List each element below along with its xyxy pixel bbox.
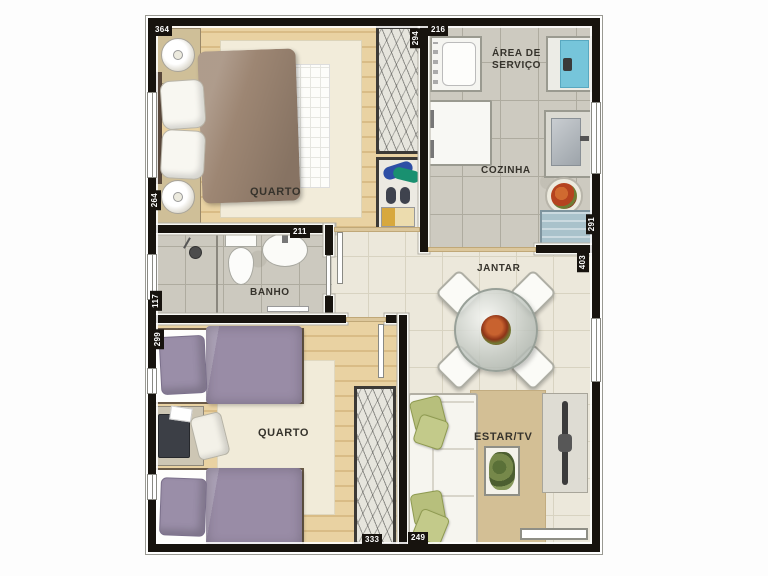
- dimension-label: 364: [152, 24, 172, 36]
- dimension-label: 117: [150, 291, 162, 311]
- dimension-label: 211: [290, 226, 310, 238]
- door-leaf: [326, 255, 331, 296]
- window: [147, 474, 157, 500]
- room-label-bathroom: BANHO: [250, 287, 290, 298]
- room-label-living-tv: ESTAR/TV: [474, 431, 532, 443]
- threshold: [428, 247, 536, 252]
- room-label-dining: JANTAR: [477, 263, 520, 274]
- room-label-kitchen: COZINHA: [481, 165, 531, 176]
- window: [591, 318, 601, 382]
- dimension-label: 249: [408, 532, 428, 544]
- room-label-bedroom-1: QUARTO: [250, 186, 301, 198]
- dimension-label: 403: [577, 252, 589, 272]
- dimension-label: 216: [428, 24, 448, 36]
- window: [591, 102, 601, 174]
- dimension-label: 299: [152, 329, 164, 349]
- room-label-line: SERVIÇO: [492, 60, 541, 72]
- floor-plan-canvas: QUARTO ÁREA DE SERVIÇO COZINHA BANHO QUA…: [0, 0, 768, 576]
- dimension-label: 264: [149, 190, 161, 210]
- door-leaf: [337, 232, 343, 284]
- threshold: [334, 227, 420, 232]
- outer-wall: [148, 18, 600, 552]
- room-label-service-area: ÁREA DE SERVIÇO: [492, 48, 541, 72]
- dimension-label: 294: [410, 28, 422, 48]
- room-label-bedroom-2: QUARTO: [258, 427, 309, 439]
- window: [147, 92, 157, 178]
- dimension-label: 291: [586, 214, 598, 234]
- threshold: [346, 317, 386, 322]
- window: [147, 368, 157, 394]
- door-leaf: [378, 324, 384, 378]
- door-leaf: [267, 306, 309, 312]
- dimension-label: 333: [362, 534, 382, 546]
- room-label-line: ÁREA DE: [492, 48, 541, 60]
